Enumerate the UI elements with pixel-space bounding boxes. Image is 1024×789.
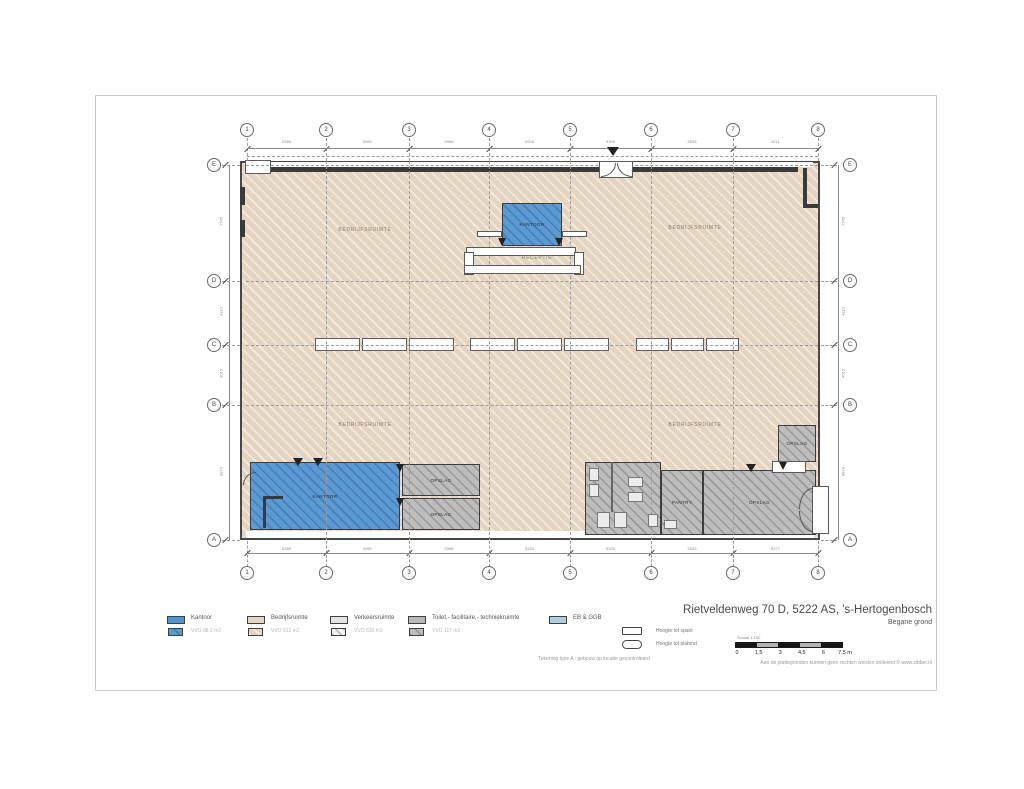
opslag-4-door-rect — [772, 461, 806, 473]
dimline-left — [229, 165, 230, 540]
scale-tick-2: 3 — [768, 650, 792, 656]
right-door — [812, 486, 829, 534]
grid-col-line-6 — [651, 161, 652, 540]
height-to-truss-label: Hoogte tot spant — [656, 628, 693, 634]
grid-col-marker-bottom-4: 4 — [482, 566, 496, 580]
height-to-ceiling-symbol — [622, 640, 642, 649]
grid-col-marker-bottom-5: 5 — [563, 566, 577, 580]
grid-col-marker-bottom-8: 8 — [811, 566, 825, 580]
area-label-3: BEDRIJFSRUIMTE — [640, 422, 750, 428]
dim-top-1: 5982 — [353, 139, 383, 144]
grid-col-line-5 — [570, 161, 571, 540]
opslag-2-door — [396, 498, 404, 506]
grid-col-marker-top-3: 3 — [402, 123, 416, 137]
grid-col-marker-bottom-7: 7 — [726, 566, 740, 580]
dim-right-1: 4110 — [841, 297, 846, 327]
grid-row-marker-left-A: A — [207, 533, 221, 547]
legend-sub-0: VVO 88.3 m2 — [191, 628, 221, 634]
scale-bar — [735, 642, 843, 648]
scale-segment-0 — [736, 643, 757, 647]
grid-col-marker-top-5: 5 — [563, 123, 577, 137]
dimline-right — [838, 165, 839, 540]
disclaimer-note: Aan de plattegronden kunnen geen rechten… — [760, 660, 932, 666]
drawing-type-note: Tekening type A : gebouw op locatie geco… — [520, 656, 668, 662]
legend-swatch-1 — [247, 616, 265, 624]
area-label-2: BEDRIJFSRUIMTE — [310, 422, 420, 428]
kantoor-top-bar-left — [477, 231, 502, 237]
pantry-sink — [664, 520, 677, 529]
legend-swatch-0 — [167, 616, 185, 624]
grid-col-marker-top-1: 1 — [240, 123, 254, 137]
kantoor-bottom-wall-v — [263, 496, 266, 528]
grid-row-line-D — [246, 281, 818, 282]
room-kantoor-top: KANTOOR — [502, 203, 562, 246]
dim-left-3: 8970 — [219, 456, 224, 486]
scale-tick-1: 1,5 — [747, 650, 771, 656]
dim-top-4: 5395 — [596, 139, 626, 144]
dim-bottom-6: 5377 — [761, 546, 791, 551]
dim-bottom-2: 5398 — [434, 546, 464, 551]
room-opslag-1: OPSLAG — [402, 464, 480, 496]
floorplan-page: KANTOORKANTOOROPSLAGOPSLAGPANTRYOPSLAGOP… — [0, 0, 1024, 789]
legend-label-2: Verkeersruimte — [354, 615, 394, 621]
room-opslag-2: OPSLAG — [402, 498, 480, 530]
legend-swatch-3 — [408, 616, 426, 624]
legend-label-3: Toilet,- facilitaire,- techniekruimte — [432, 615, 519, 621]
scale-tick-5: 7,5 m — [833, 650, 857, 656]
dim-right-2: 4015 — [841, 359, 846, 389]
dim-left-2: 4015 — [219, 359, 224, 389]
legend-hatch-swatch-1 — [248, 628, 263, 636]
grid-col-marker-top-4: 4 — [482, 123, 496, 137]
dimline-top — [247, 148, 818, 149]
legend-sub-3: VVO 117 m2 — [432, 628, 460, 634]
opslag-1-door — [396, 464, 404, 472]
kantoor-top-bar-right — [562, 231, 587, 237]
kantoor-top-door-right — [555, 238, 563, 246]
left-wall-door-2 — [240, 220, 245, 237]
grid-row-marker-right-D: D — [843, 274, 857, 288]
grid-col-marker-top-7: 7 — [726, 123, 740, 137]
dimline-bottom — [247, 553, 818, 554]
opslag-3-door — [746, 464, 756, 472]
area-label-0: BEDRIJFSRUIMTE — [310, 227, 420, 233]
dim-left-1: 4110 — [219, 297, 224, 327]
scale-tick-4: 6 — [811, 650, 835, 656]
legend-hatch-swatch-2 — [331, 628, 346, 636]
area-label-4: RECEPTIE — [482, 255, 592, 261]
wc-5 — [628, 477, 643, 487]
grid-col-line-3 — [409, 161, 410, 540]
top-wall-band — [252, 167, 798, 172]
dim-top-0: 5385 — [272, 139, 302, 144]
grid-row-line-E — [246, 165, 818, 166]
scale-segment-4 — [821, 643, 842, 647]
grid-row-marker-right-C: C — [843, 338, 857, 352]
wc-1 — [589, 468, 599, 481]
grid-col-marker-top-6: 6 — [644, 123, 658, 137]
legend-swatch-2 — [330, 616, 348, 624]
dim-top-5: 5543 — [677, 139, 707, 144]
legend-sub-1: VVO 912 m2 — [271, 628, 300, 634]
grid-col-line-2 — [326, 161, 327, 540]
height-to-ceiling-label: Hoogte tot plafond — [656, 641, 697, 647]
wc-2 — [589, 484, 599, 497]
grid-col-marker-bottom-1: 1 — [240, 566, 254, 580]
grid-row-marker-left-D: D — [207, 274, 221, 288]
dim-top-3: 5926 — [515, 139, 545, 144]
dim-bottom-1: 5982 — [353, 546, 383, 551]
grid-row-marker-right-B: B — [843, 398, 857, 412]
grid-row-marker-left-B: B — [207, 398, 221, 412]
sanitair-wall — [611, 462, 613, 512]
height-to-truss-symbol — [622, 627, 642, 635]
grid-row-line-C — [246, 345, 818, 346]
dim-bottom-0: 5385 — [272, 546, 302, 551]
dim-bottom-5: 5543 — [677, 546, 707, 551]
legend-swatch-4 — [549, 616, 567, 624]
scale-tick-3: 4,5 — [790, 650, 814, 656]
grid-col-marker-bottom-2: 2 — [319, 566, 333, 580]
top-left-notch — [245, 160, 271, 174]
grid-col-marker-bottom-3: 3 — [402, 566, 416, 580]
wc-7 — [648, 514, 658, 527]
dim-right-3: 8970 — [841, 456, 846, 486]
legend-hatch-swatch-3 — [409, 628, 424, 636]
grid-row-marker-right-A: A — [843, 533, 857, 547]
grid-col-marker-top-8: 8 — [811, 123, 825, 137]
dim-bottom-3: 5320 — [515, 546, 545, 551]
kantoor-top-door-left — [498, 238, 506, 246]
grid-row-marker-left-E: E — [207, 158, 221, 172]
kantoor-bottom-door-1 — [293, 458, 303, 466]
scale-segment-2 — [778, 643, 799, 647]
room-opslag-4: OPSLAG — [778, 425, 816, 462]
grid-col-marker-bottom-6: 6 — [644, 566, 658, 580]
page-title: Rietveldenweg 70 D, 5222 AS, 's-Hertogen… — [683, 604, 932, 616]
wc-4 — [614, 512, 627, 528]
dim-top-2: 5556 — [434, 139, 464, 144]
legend-label-4: EB & GGB — [573, 615, 602, 621]
dim-bottom-4: 5395 — [596, 546, 626, 551]
reception-band-2 — [464, 265, 581, 274]
legend-label-1: Bedrijfsruimte — [271, 615, 308, 621]
left-wall-door-1 — [240, 187, 245, 205]
scale-segment-1 — [757, 643, 778, 647]
dim-left-0: 7745 — [219, 207, 224, 237]
wc-3 — [597, 512, 610, 528]
entrance-marker — [607, 147, 619, 156]
opslag-4-door — [779, 462, 787, 470]
grid-col-line-7 — [733, 161, 734, 540]
grid-col-line-4 — [489, 161, 490, 540]
legend-hatch-swatch-0 — [168, 628, 183, 636]
scale-caption: Schaal 1:150 — [737, 635, 760, 640]
area-label-1: BEDRIJFSRUIMTE — [640, 225, 750, 231]
wc-6 — [628, 492, 643, 502]
top-right-wall-v — [803, 168, 807, 208]
scale-segment-3 — [800, 643, 821, 647]
grid-row-marker-left-C: C — [207, 338, 221, 352]
legend-label-0: Kantoor — [191, 615, 212, 621]
scale-tick-0: 0 — [725, 650, 749, 656]
kantoor-bottom-wall-h — [263, 496, 283, 499]
kantoor-bottom-door-2 — [313, 458, 323, 466]
grid-row-line-B — [246, 405, 818, 406]
dim-right-0: 7745 — [841, 207, 846, 237]
legend-sub-2: VVO 630 m2 — [354, 628, 383, 634]
grid-col-marker-top-2: 2 — [319, 123, 333, 137]
dim-top-6: 5211 — [761, 139, 791, 144]
grid-row-marker-right-E: E — [843, 158, 857, 172]
floor-subtitle: Begane grond — [732, 619, 932, 626]
top-right-wall-h — [803, 204, 818, 208]
